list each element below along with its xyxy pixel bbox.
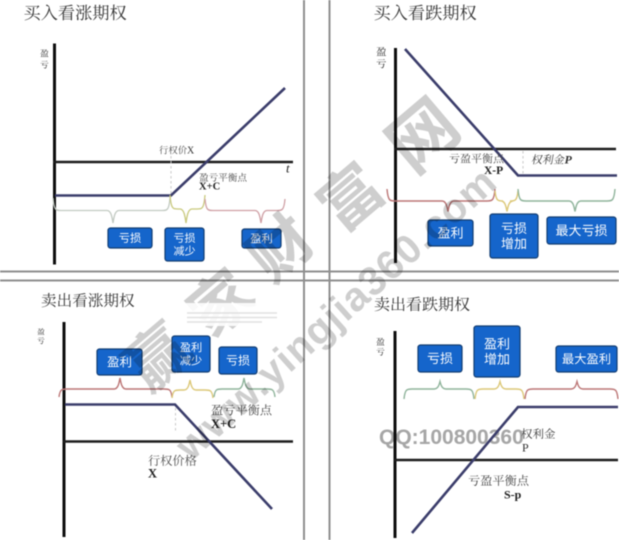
svg-text:P: P	[565, 153, 573, 167]
svg-text:QQ:100800360: QQ:100800360	[379, 426, 524, 449]
svg-text:t: t	[286, 161, 290, 176]
svg-text:X: X	[187, 146, 195, 157]
svg-text:X+C: X+C	[199, 182, 220, 193]
svg-text:P: P	[522, 441, 529, 455]
svg-text:S-p: S-p	[504, 488, 522, 502]
svg-text:X: X	[148, 467, 157, 481]
